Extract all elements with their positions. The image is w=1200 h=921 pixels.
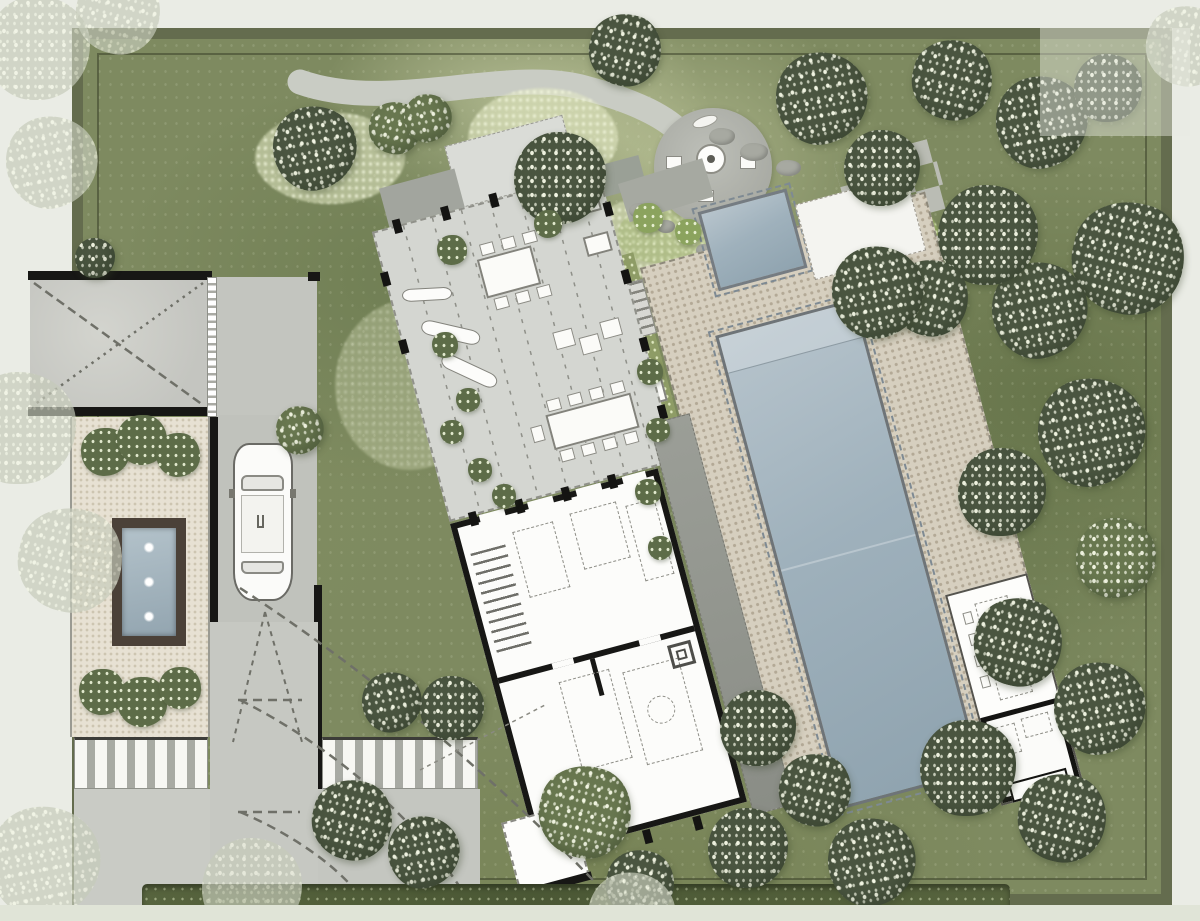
tree-canopy (708, 808, 788, 888)
chair (588, 386, 605, 401)
sun-lounger (402, 287, 453, 303)
car-roof-detail (257, 515, 264, 528)
shrub (437, 235, 467, 265)
door-opening (552, 658, 575, 669)
shrub (633, 203, 663, 233)
side-table (583, 231, 613, 257)
chair (536, 284, 553, 299)
car-rear-window (241, 561, 284, 574)
shrub (440, 420, 464, 444)
paver-band-west (74, 737, 208, 789)
kitchen-island (512, 521, 570, 598)
chair (515, 290, 532, 305)
tree-canopy (958, 448, 1046, 536)
chair (962, 611, 974, 625)
upper-drive-court (217, 277, 317, 415)
kitchen-fixture (1021, 712, 1053, 739)
lounge-seat (552, 328, 576, 351)
shrub (156, 433, 200, 477)
courtyard-east-wall (210, 417, 218, 622)
stepping-stone (740, 143, 768, 161)
car-mirror-right (290, 489, 296, 498)
shrub (159, 667, 201, 709)
pool-joint-line (781, 534, 916, 572)
stepping-stone (776, 160, 801, 176)
car-windshield (241, 475, 284, 491)
tree-canopy (720, 690, 796, 766)
chair (493, 295, 510, 310)
chair (479, 241, 496, 256)
lounge-seat (579, 333, 603, 356)
shrub (432, 332, 458, 358)
shrub (635, 479, 661, 505)
chair (546, 397, 563, 412)
shrub (675, 219, 701, 245)
lounge-seat (599, 317, 623, 340)
shrub (637, 359, 663, 385)
garage-north-wall (28, 271, 212, 280)
fireplace (667, 640, 696, 669)
bed (559, 669, 633, 771)
shrub (648, 536, 672, 560)
fireplace-inner (676, 648, 688, 660)
slatted-gate-screen (207, 277, 217, 417)
chair (979, 675, 991, 689)
tree-canopy (420, 676, 484, 740)
shrub (456, 388, 480, 412)
wall-stub (308, 272, 320, 281)
tree-canopy (514, 132, 606, 224)
furniture-group (569, 501, 630, 569)
tree-canopy (75, 238, 115, 278)
fire-pit-flame (707, 155, 715, 163)
chair (559, 447, 576, 462)
chair (530, 425, 546, 444)
chair (500, 235, 517, 250)
chair (623, 430, 640, 445)
water-feature (112, 518, 186, 646)
car-mirror-left (229, 489, 235, 498)
shrub (646, 418, 670, 442)
shrub (468, 458, 492, 482)
stepping-stone (709, 128, 735, 145)
chair (602, 436, 619, 451)
parked-car (233, 443, 293, 601)
tree-canopy (1076, 518, 1156, 598)
bottom-margin (0, 905, 1200, 921)
chair (567, 392, 584, 407)
shrub (534, 210, 562, 238)
chair (609, 380, 626, 395)
site-plan-canvas (0, 0, 1200, 921)
tree-canopy (920, 720, 1016, 816)
shrub (492, 484, 516, 508)
edge-fade-wash (1040, 28, 1190, 136)
door-opening (638, 634, 661, 645)
tree-canopy (844, 130, 920, 206)
chair (580, 442, 597, 457)
